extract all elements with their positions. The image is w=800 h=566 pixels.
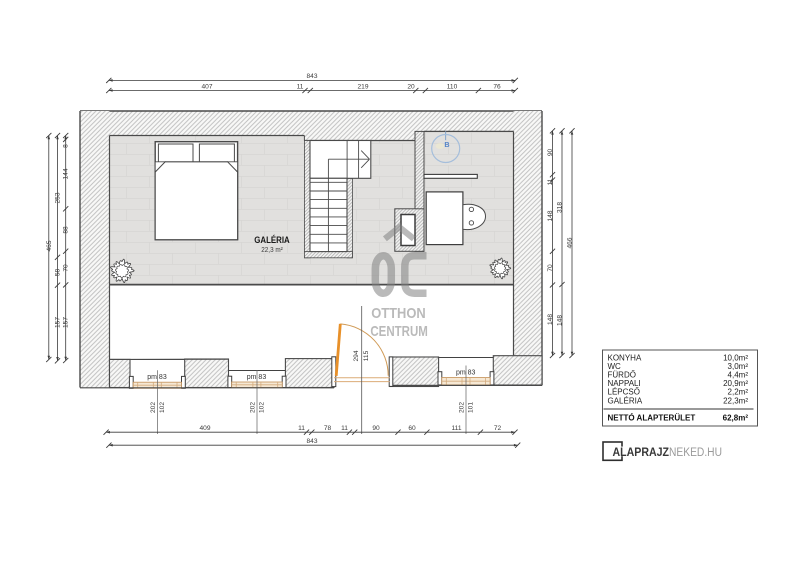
- svg-text:102: 102: [159, 402, 166, 413]
- svg-text:148: 148: [547, 210, 554, 221]
- svg-text:157: 157: [55, 317, 62, 328]
- svg-text:90: 90: [372, 425, 380, 432]
- svg-text:466: 466: [567, 237, 574, 248]
- svg-text:CENTRUM: CENTRUM: [370, 323, 428, 340]
- svg-text:11: 11: [297, 83, 304, 90]
- svg-text:88: 88: [63, 226, 70, 234]
- svg-text:407: 407: [201, 83, 212, 90]
- svg-text:253: 253: [55, 192, 62, 203]
- svg-text:843: 843: [306, 438, 317, 445]
- svg-text:11: 11: [298, 425, 305, 432]
- svg-text:318: 318: [557, 202, 564, 213]
- svg-text:11: 11: [547, 178, 554, 185]
- svg-text:90: 90: [547, 149, 554, 157]
- svg-text:60: 60: [408, 425, 416, 432]
- svg-text:20: 20: [407, 83, 415, 90]
- svg-text:58: 58: [55, 269, 62, 277]
- svg-text:294: 294: [353, 350, 360, 361]
- svg-text:8: 8: [63, 144, 70, 148]
- svg-text:843: 843: [306, 73, 317, 80]
- svg-text:157: 157: [63, 317, 70, 328]
- svg-text:465: 465: [46, 240, 53, 251]
- svg-text:76: 76: [493, 83, 501, 90]
- svg-text:202: 202: [150, 402, 157, 413]
- svg-text:144: 144: [63, 168, 70, 179]
- svg-text:22,3 m²: 22,3 m²: [261, 245, 283, 254]
- svg-text:409: 409: [199, 425, 210, 432]
- svg-text:22,3m²: 22,3m²: [723, 396, 748, 405]
- svg-text:GALÉRIA: GALÉRIA: [608, 396, 643, 405]
- svg-text:NETTÓ ALAPTERÜLET: NETTÓ ALAPTERÜLET: [608, 414, 696, 423]
- svg-text:110: 110: [447, 83, 458, 90]
- svg-text:78: 78: [324, 425, 332, 432]
- svg-text:102: 102: [258, 402, 265, 413]
- svg-text:111: 111: [451, 425, 461, 432]
- svg-text:101: 101: [467, 402, 474, 413]
- svg-text:148: 148: [557, 315, 564, 326]
- svg-text:70: 70: [547, 264, 554, 272]
- svg-text:OTTHON: OTTHON: [371, 305, 426, 322]
- svg-text:B: B: [444, 140, 449, 149]
- svg-text:NEKED.HU: NEKED.HU: [669, 447, 722, 459]
- svg-text:ALAPRAJZ: ALAPRAJZ: [613, 447, 670, 459]
- svg-text:72: 72: [494, 425, 502, 432]
- svg-text:pm 83: pm 83: [247, 374, 267, 381]
- svg-text:11: 11: [341, 425, 348, 432]
- svg-text:62,8m²: 62,8m²: [723, 414, 749, 423]
- svg-text:202: 202: [459, 402, 466, 413]
- svg-text:148: 148: [547, 314, 554, 325]
- svg-text:202: 202: [250, 402, 257, 413]
- svg-text:70: 70: [63, 264, 70, 272]
- svg-text:219: 219: [357, 83, 368, 90]
- svg-text:115: 115: [363, 350, 370, 361]
